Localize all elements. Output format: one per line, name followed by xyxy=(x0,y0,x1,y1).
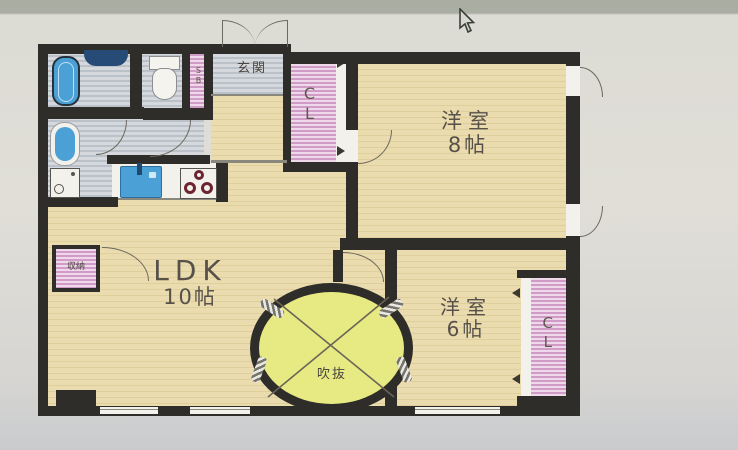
wall xyxy=(216,160,228,202)
closet-bottom-label: CL xyxy=(539,314,556,352)
wall xyxy=(346,52,358,130)
bedroom8-line1: 洋室 xyxy=(420,110,516,134)
wall xyxy=(130,52,142,112)
atrium-label: 吹抜 xyxy=(304,368,360,383)
wall xyxy=(333,250,343,282)
closet-top-label: CL xyxy=(300,84,318,124)
stove-burners-icon xyxy=(180,168,217,199)
room-label-bedroom8: 洋室 8帖 xyxy=(420,110,516,157)
room-label-ldk: LDK 10帖 xyxy=(130,255,250,310)
bedroom6-line2: 6帖 xyxy=(418,318,514,340)
closet-top-hinge-icon xyxy=(337,146,345,156)
laundry-pan-icon xyxy=(50,168,80,198)
entry-door-right-icon xyxy=(255,20,288,47)
ldk-line1: LDK xyxy=(130,255,250,286)
wall xyxy=(517,270,566,278)
wall xyxy=(340,238,580,250)
window xyxy=(415,407,500,414)
room-label-bedroom6: 洋室 6帖 xyxy=(418,296,514,341)
wall xyxy=(56,390,96,406)
wall xyxy=(107,155,210,164)
ldk-line2: 10帖 xyxy=(130,286,250,310)
wall xyxy=(38,44,48,416)
corridor-threshold xyxy=(211,160,287,163)
entrance-label: 玄関 xyxy=(226,62,278,77)
balcony-door-icon xyxy=(580,67,603,97)
atrium-cross-icon xyxy=(250,283,413,413)
bedroom8-line2: 8帖 xyxy=(420,134,516,158)
mouse-cursor-icon xyxy=(458,8,478,36)
shoe-box-label: SB xyxy=(193,66,202,86)
window xyxy=(100,407,158,414)
entry-door-left-icon xyxy=(222,20,255,47)
storage-label: 収納 xyxy=(56,262,96,272)
wall xyxy=(517,396,566,406)
corridor-floor xyxy=(211,96,287,162)
closet-bottom-doors xyxy=(521,278,531,396)
wall xyxy=(204,44,213,120)
wall xyxy=(346,162,358,250)
wall xyxy=(40,107,144,119)
kitchen-sink-icon xyxy=(120,166,162,198)
bathtub-icon xyxy=(52,56,80,106)
vanity-counter-icon xyxy=(84,50,128,66)
closet-bottom-hinge-icon xyxy=(512,374,520,384)
wall xyxy=(143,108,210,120)
bedroom8-door-gap xyxy=(346,130,358,162)
balcony-door-gap xyxy=(566,66,580,96)
balcony-door-gap xyxy=(566,204,580,236)
bedroom6-line1: 洋室 xyxy=(418,296,514,318)
toilet-icon xyxy=(148,56,180,102)
wall xyxy=(283,44,291,164)
washbasin-icon xyxy=(50,122,80,166)
window xyxy=(190,407,250,414)
floorplan-photo: LDK 10帖 洋室 8帖 洋室 6帖 玄関 CL CL SB 収納 吹抜 xyxy=(0,0,738,450)
wall xyxy=(283,52,580,64)
balcony-door-icon xyxy=(580,206,603,237)
wall xyxy=(38,197,118,207)
entrance-step-line xyxy=(211,94,283,96)
wall xyxy=(182,44,190,116)
